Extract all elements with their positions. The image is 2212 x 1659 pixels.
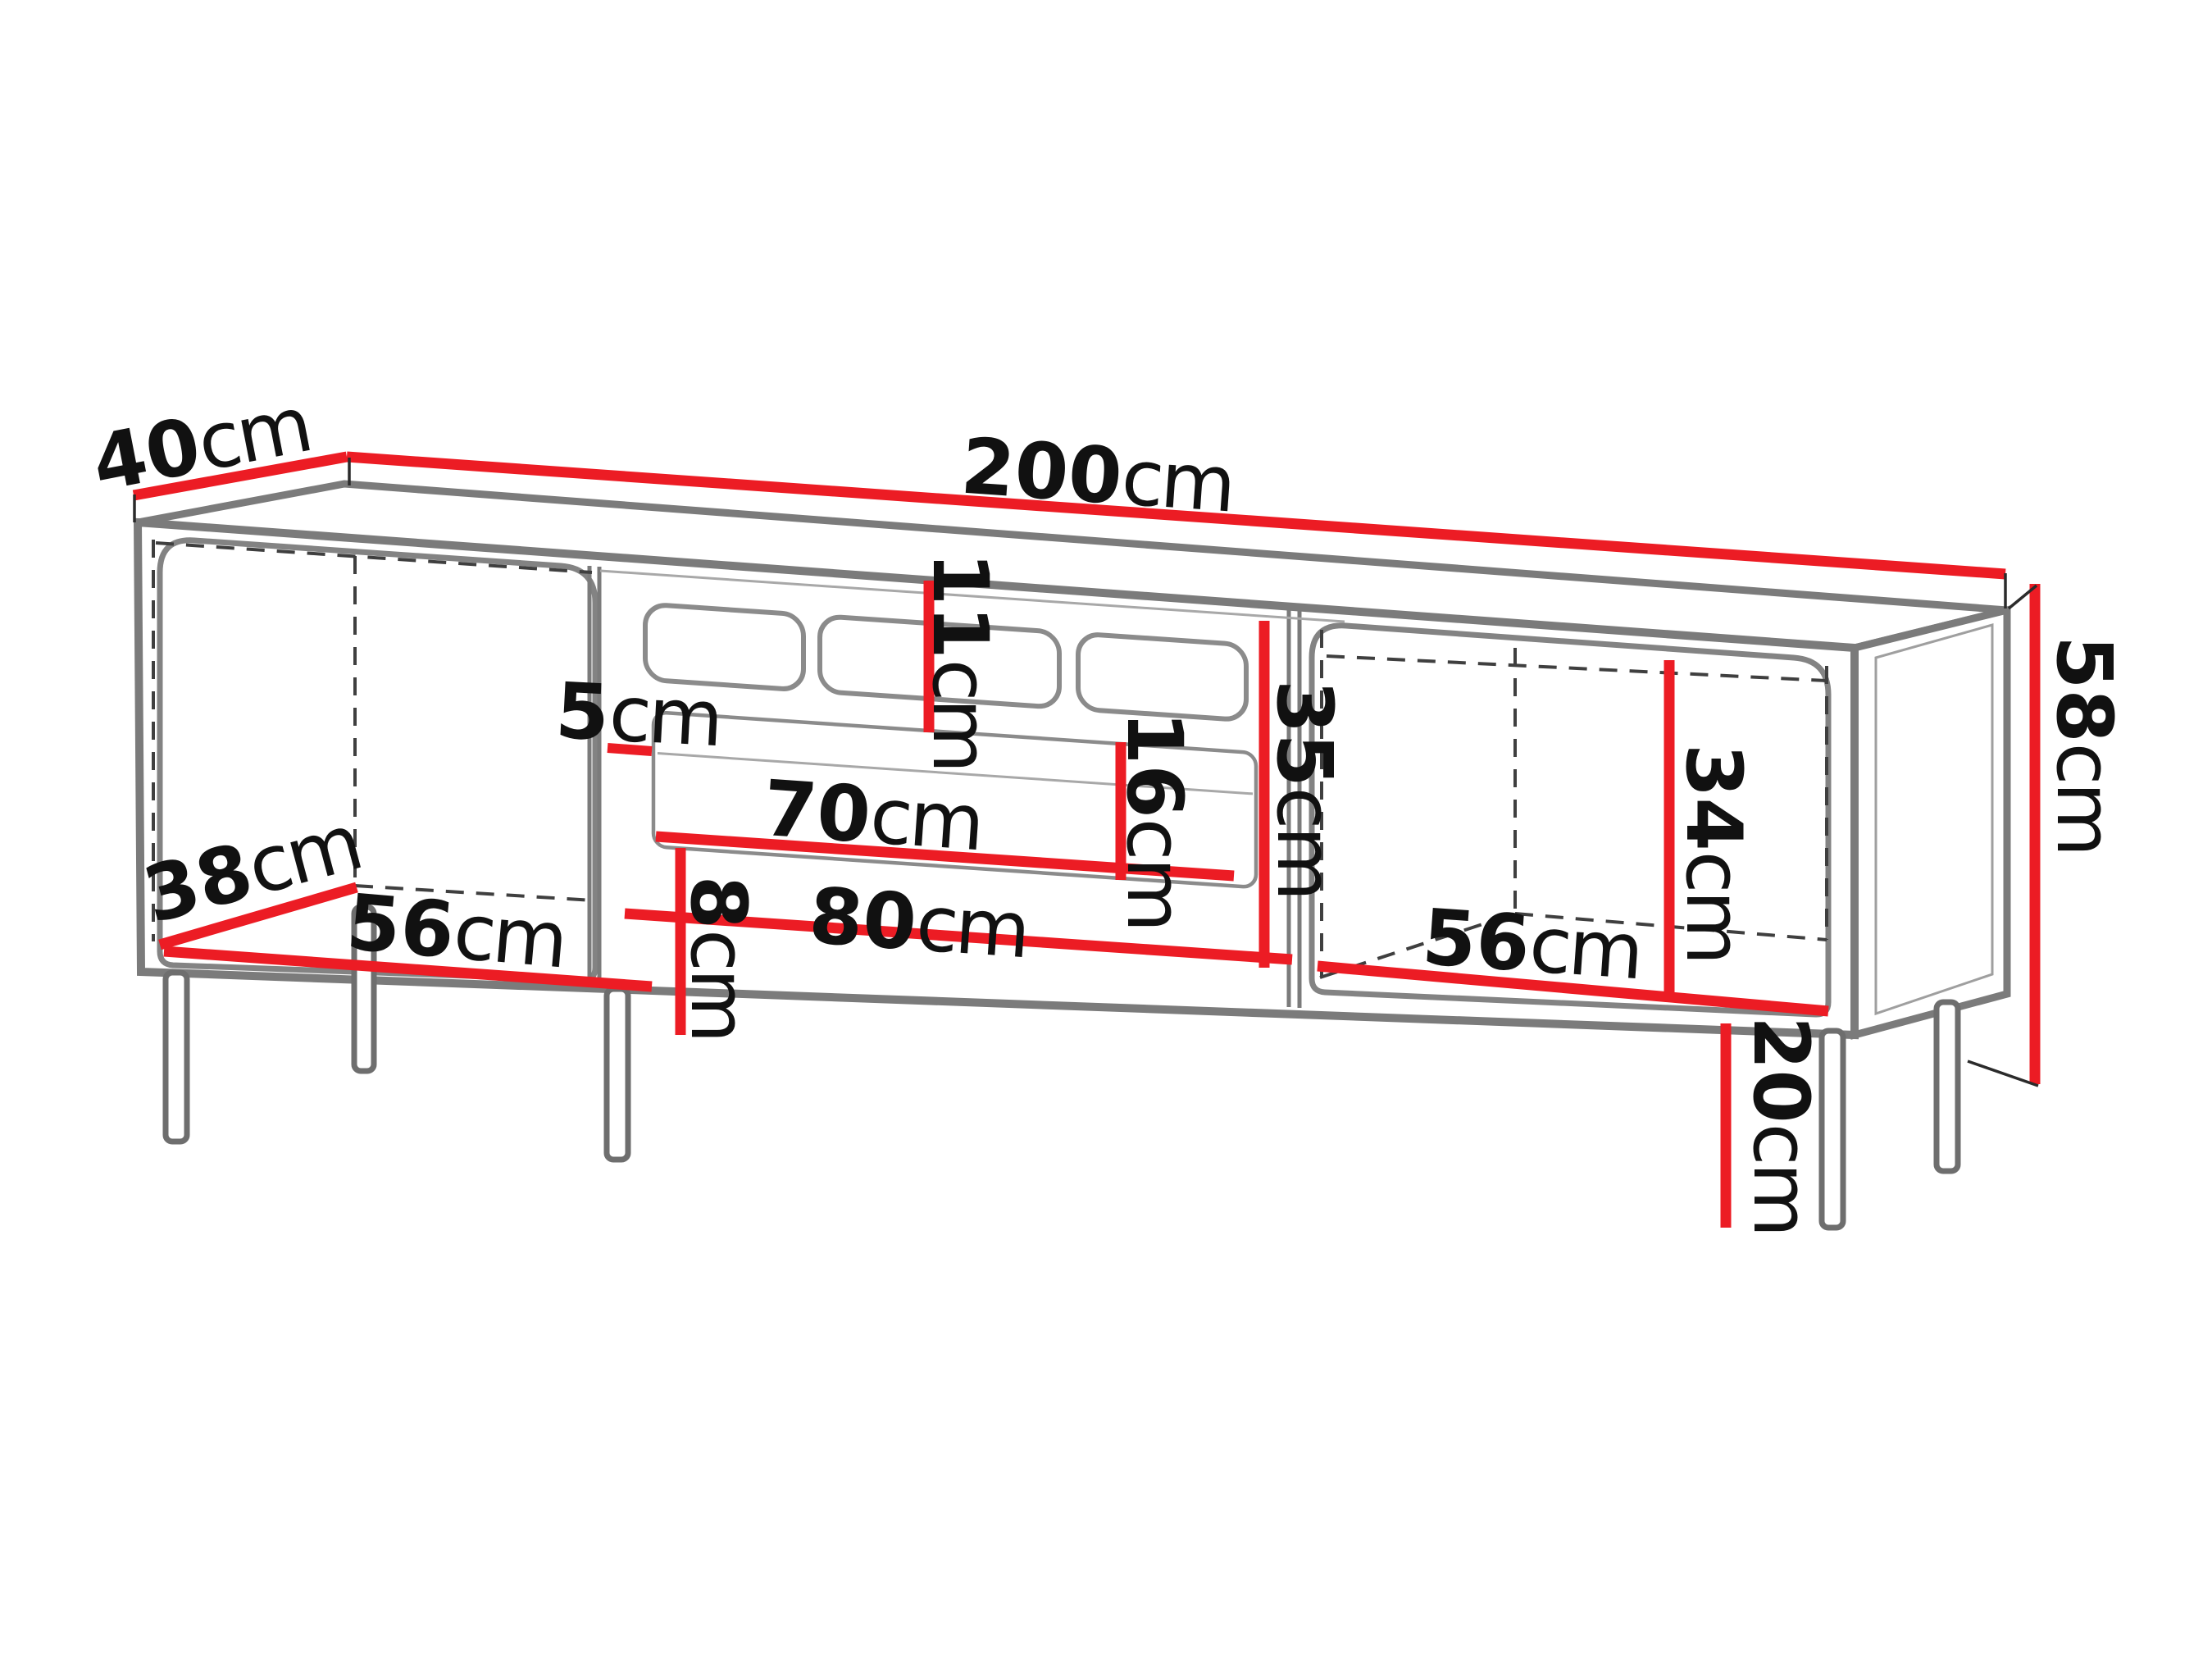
dim-label-vent-height: 11cm <box>916 552 1005 770</box>
dim-label-drawer-width: 70cm <box>760 763 984 868</box>
dim-label-right-height: 34cm <box>1669 744 1759 962</box>
front-left-leg <box>166 973 187 1142</box>
dim-label-divider-offset: 5cm <box>553 666 722 763</box>
dim-label-total-height: 58cm <box>2040 636 2129 854</box>
dim-label-middle-height: 35cm <box>1260 680 1350 898</box>
dim-label-leg-height: 20cm <box>1736 1016 1826 1234</box>
dim-label-top-depth: 40cm <box>85 380 316 509</box>
dim-label-bottom-rail: 8cm <box>674 876 763 1041</box>
cabinet-right-side-panel <box>1855 610 2007 1035</box>
furniture-dimension-diagram: 40cm 200cm 58cm 20cm 38cm 56cm 5cm 11cm … <box>0 0 2212 1659</box>
vent-slot-3 <box>1078 633 1246 720</box>
front-middle-leg <box>607 989 628 1160</box>
tick-height-bottom-connector <box>1968 1061 2038 1086</box>
dim-label-middle-width: 80cm <box>806 871 1030 975</box>
dim-label-top-width: 200cm <box>958 422 1236 530</box>
dim-label-left-width: 56cm <box>344 877 569 986</box>
dim-label-drawer-height: 16cm <box>1110 711 1199 929</box>
diagram-canvas: 40cm 200cm 58cm 20cm 38cm 56cm 5cm 11cm … <box>0 0 2212 1659</box>
back-right-leg <box>1937 1002 1958 1171</box>
dim-label-right-width: 56cm <box>1419 892 1643 996</box>
